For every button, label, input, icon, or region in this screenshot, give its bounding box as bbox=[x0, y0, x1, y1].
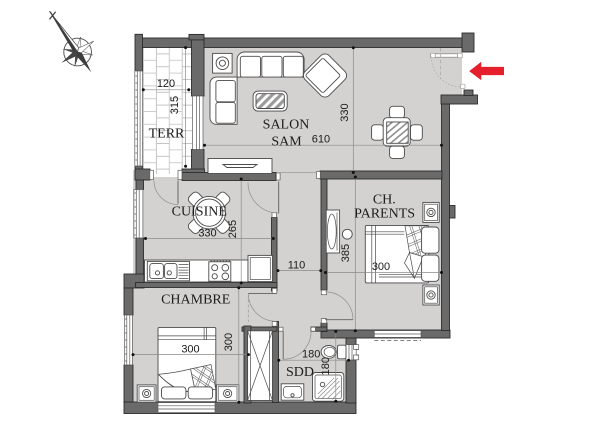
svg-text:110: 110 bbox=[288, 260, 306, 272]
svg-text:180: 180 bbox=[302, 349, 320, 361]
svg-text:TERR: TERR bbox=[149, 127, 185, 142]
svg-text:330: 330 bbox=[339, 103, 351, 121]
svg-text:PARENTS: PARENTS bbox=[354, 207, 415, 222]
svg-text:SDD: SDD bbox=[286, 365, 314, 380]
svg-text:300: 300 bbox=[181, 343, 199, 355]
svg-text:CUISINE: CUISINE bbox=[172, 204, 227, 219]
svg-text:265: 265 bbox=[227, 220, 239, 238]
svg-text:300: 300 bbox=[372, 261, 390, 273]
svg-text:300: 300 bbox=[223, 333, 235, 351]
svg-text:CHAMBRE: CHAMBRE bbox=[161, 293, 230, 308]
svg-text:CH.: CH. bbox=[373, 192, 396, 207]
svg-text:120: 120 bbox=[157, 78, 175, 90]
svg-text:385: 385 bbox=[340, 244, 352, 262]
svg-text:SAM: SAM bbox=[271, 134, 302, 149]
svg-text:610: 610 bbox=[312, 134, 330, 146]
svg-text:SALON: SALON bbox=[263, 118, 310, 133]
svg-text:315: 315 bbox=[169, 96, 181, 114]
svg-text:330: 330 bbox=[198, 227, 216, 239]
svg-text:180: 180 bbox=[320, 357, 332, 375]
